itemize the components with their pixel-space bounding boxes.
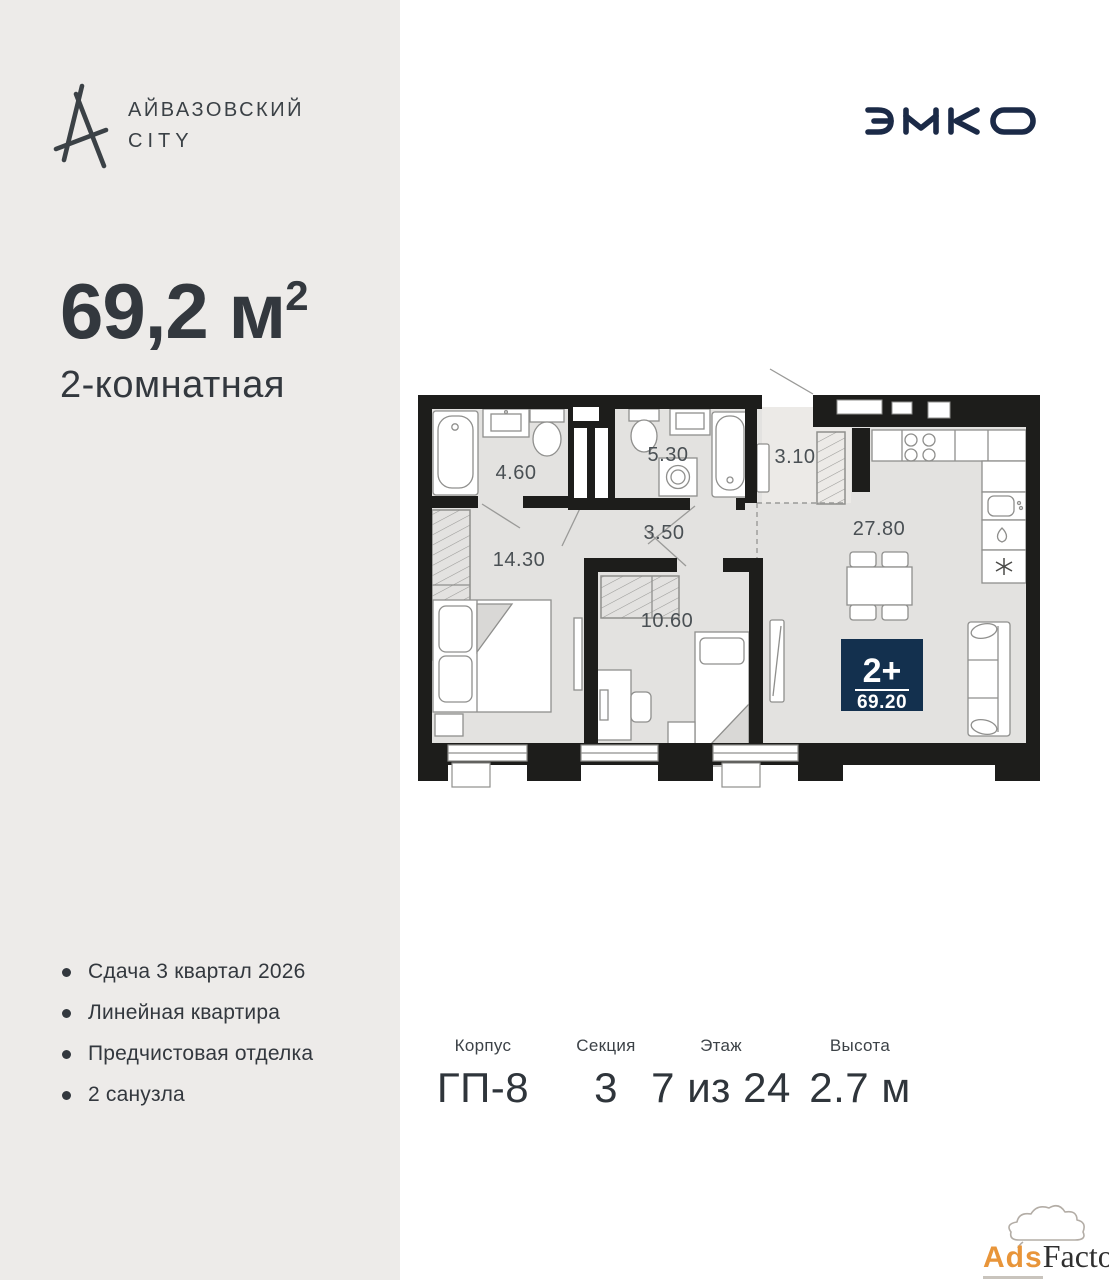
detail-building: Корпус ГП-8 <box>413 1036 553 1112</box>
feature-item: 2 санузла <box>62 1083 313 1107</box>
window-sill-icon <box>452 763 490 787</box>
room-label-bedroom: 14.30 <box>493 549 546 571</box>
apartment-type: 2-комнатная <box>60 364 309 407</box>
feature-item: Сдача 3 квартал 2026 <box>62 960 313 984</box>
mirror-icon <box>574 618 582 690</box>
nightstand-bedroom-icon <box>435 714 463 736</box>
apartment-summary: 69,2 м2 2-комнатная <box>60 272 309 407</box>
room-label-bath1: 4.60 <box>496 462 537 484</box>
watermark-factory: Factory <box>1043 1238 1109 1274</box>
brand-logo: АЙВАЗОВСКИЙ CITY <box>45 78 375 178</box>
area-sup: 2 <box>285 272 308 319</box>
listing-card: АЙВАЗОВСКИЙ CITY 69,2 м2 2-комнатная <box>0 0 1109 1280</box>
room-label-corridor: 3.50 <box>644 522 685 544</box>
wardrobe-hall-icon <box>817 432 845 504</box>
watermark: AdsFactory <box>975 1200 1109 1280</box>
feature-text: Предчистовая отделка <box>88 1042 313 1066</box>
detail-label: Корпус <box>413 1036 553 1056</box>
area-value: 69,2 м <box>60 267 285 355</box>
detail-value: 2.7 м <box>790 1064 930 1112</box>
brand-city: CITY <box>128 131 304 151</box>
watermark-ads: Ads <box>983 1241 1043 1279</box>
feature-text: 2 санузла <box>88 1083 185 1107</box>
sink-1-icon <box>483 409 529 437</box>
room-label-bath2: 5.30 <box>648 444 689 466</box>
room-label-hall: 3.10 <box>775 446 816 468</box>
badge-rooms: 2+ <box>863 652 902 690</box>
feature-item: Предчистовая отделка <box>62 1042 313 1066</box>
double-bed-icon <box>433 600 551 712</box>
bathtub-2-icon <box>712 412 748 497</box>
room-label-living: 27.80 <box>853 518 906 540</box>
sofa-icon <box>968 621 1010 736</box>
developer-logo-enko <box>858 100 1042 142</box>
feature-text: Сдача 3 квартал 2026 <box>88 960 305 984</box>
detail-floor: Этаж 7 из 24 <box>641 1036 801 1112</box>
detail-value: ГП-8 <box>413 1064 553 1112</box>
detail-label: Высота <box>790 1036 930 1056</box>
bullet-icon <box>62 1091 71 1100</box>
bathtub-1-icon <box>433 411 478 495</box>
brand-name: АЙВАЗОВСКИЙ <box>128 100 304 120</box>
detail-value: 7 из 24 <box>641 1064 801 1112</box>
kitchen-counter-icon <box>872 430 1026 461</box>
brand-text: АЙВАЗОВСКИЙ CITY <box>128 100 304 151</box>
feature-item: Линейная квартира <box>62 1001 313 1025</box>
bullet-icon <box>62 1009 71 1018</box>
detail-height: Высота 2.7 м <box>790 1036 930 1112</box>
window-sill-icon <box>722 763 760 787</box>
entry-door-leaf-icon <box>757 444 769 492</box>
apartment-area: 69,2 м2 <box>60 272 309 350</box>
features-list: Сдача 3 квартал 2026 Линейная квартира П… <box>62 960 313 1124</box>
detail-label: Этаж <box>641 1036 801 1056</box>
bullet-icon <box>62 968 71 977</box>
room-label-kids: 10.60 <box>641 610 694 632</box>
badge-area: 69.20 <box>857 692 907 713</box>
toilet-1-icon <box>530 409 564 456</box>
windows <box>448 745 798 787</box>
apartment-badge: 2+ 69.20 <box>841 639 923 713</box>
sink-2-icon <box>670 409 710 435</box>
bullet-icon <box>62 1050 71 1059</box>
watermark-text: AdsFactory <box>983 1238 1109 1275</box>
floorplan-svg: 4.60 5.30 3.10 3.50 14.30 10.60 27.80 2+… <box>413 345 1045 800</box>
living-door-leaf-icon <box>770 620 784 702</box>
feature-text: Линейная квартира <box>88 1001 280 1025</box>
nightstand-kids-icon <box>668 722 695 746</box>
brand-mark-a-icon <box>45 78 125 173</box>
